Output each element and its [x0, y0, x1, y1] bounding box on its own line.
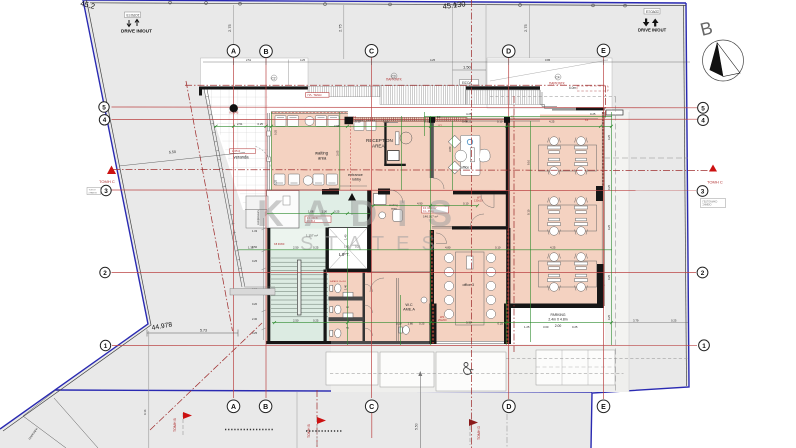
svg-text:3: 3: [104, 188, 108, 195]
svg-text:3.79: 3.79: [633, 319, 639, 323]
svg-text:0.25: 0.25: [258, 122, 264, 126]
svg-text:K8 Φ450: K8 Φ450: [274, 242, 285, 246]
svg-text:0.25: 0.25: [274, 129, 278, 135]
svg-text:4.25: 4.25: [607, 224, 611, 230]
svg-text:9.10: 9.10: [527, 209, 531, 215]
svg-text:entrance: entrance: [348, 173, 363, 177]
svg-text:ΣΗΜΕΙΟ: ΣΗΜΕΙΟ: [89, 193, 98, 195]
svg-text:4.25: 4.25: [607, 134, 611, 140]
svg-text:0.25: 0.25: [252, 259, 258, 263]
svg-text:E: E: [601, 48, 606, 55]
svg-text:9.10: 9.10: [526, 159, 530, 165]
svg-text:0.20: 0.20: [252, 302, 258, 306]
svg-text:C: C: [369, 48, 374, 55]
svg-text:4.25: 4.25: [430, 58, 436, 62]
svg-text:ΕΙΣΟΔ: ΕΙΣΟΔ: [462, 81, 472, 85]
svg-text:5.50: 5.50: [415, 423, 419, 430]
svg-text:0.25: 0.25: [671, 319, 677, 323]
svg-text:ΣΗΜΕΙΟ: ΣΗΜΕΙΟ: [703, 205, 712, 207]
svg-text:3.65: 3.65: [336, 150, 340, 156]
svg-text:2.50: 2.50: [252, 245, 258, 249]
svg-text:2.50: 2.50: [293, 319, 299, 323]
svg-text:A: A: [231, 404, 236, 411]
svg-text:ΚΑΤΑΣΚ 15x200: ΚΑΤΑΣΚ 15x200: [330, 280, 347, 283]
svg-text:9.16: 9.16: [143, 409, 147, 415]
svg-text:C2: C2: [272, 77, 276, 81]
svg-text:1.40: 1.40: [344, 234, 348, 240]
svg-text:1.80: 1.80: [408, 322, 414, 326]
svg-text:4.25: 4.25: [549, 120, 555, 124]
svg-text:D: D: [506, 404, 511, 411]
svg-text:AREA: AREA: [372, 144, 385, 149]
svg-text:K2: K2: [353, 115, 357, 119]
svg-text:4: 4: [103, 117, 107, 124]
svg-text:1.25: 1.25: [524, 325, 530, 329]
svg-text:2.30: 2.30: [252, 317, 258, 321]
svg-text:0.10: 0.10: [396, 322, 402, 326]
svg-text:0.10: 0.10: [463, 202, 469, 206]
svg-text:PARKING: PARKING: [550, 313, 565, 317]
svg-text:TOMH B: TOMH B: [173, 417, 177, 432]
svg-text:4.25: 4.25: [300, 58, 306, 62]
svg-text:D: D: [506, 49, 511, 56]
svg-text:0.10: 0.10: [495, 246, 501, 250]
svg-text:TOMH C: TOMH C: [99, 179, 115, 184]
svg-text:3.60: 3.60: [383, 120, 389, 124]
svg-text:ΠΑΡΚΙΝΓΚ: ΠΑΡΚΙΝΓΚ: [549, 82, 566, 86]
svg-text:ΕΞΟΔΟΣ: ΕΞΟΔΟΣ: [127, 13, 140, 17]
svg-text:5.73: 5.73: [200, 329, 207, 333]
svg-text:E: E: [601, 404, 606, 411]
svg-text:0.25: 0.25: [313, 246, 319, 250]
svg-text:0.25: 0.25: [498, 322, 504, 326]
svg-text:25x200: 25x200: [438, 318, 447, 322]
svg-text:2: 2: [103, 270, 107, 277]
svg-text:0.25: 0.25: [590, 112, 596, 116]
svg-text:4.25: 4.25: [466, 120, 472, 124]
svg-text:2.75: 2.75: [337, 23, 342, 32]
svg-text:4.25: 4.25: [550, 246, 556, 250]
svg-text:0.25: 0.25: [334, 209, 340, 213]
svg-text:B: B: [263, 404, 268, 411]
svg-text:3.95: 3.95: [545, 58, 551, 62]
svg-text:ΠΛ. ΤΕΝΩ: ΠΛ. ΤΕΝΩ: [308, 93, 323, 97]
svg-text:office 1: office 1: [461, 166, 472, 170]
svg-text:K1 Φ45: K1 Φ45: [230, 111, 239, 115]
svg-text:0.25: 0.25: [419, 322, 425, 326]
svg-text:TOMH D: TOMH D: [477, 425, 481, 440]
svg-text:4: 4: [701, 118, 705, 125]
svg-text:130x20: 130x20: [474, 198, 483, 202]
svg-text:TOMH C: TOMH C: [707, 180, 723, 185]
svg-text:K3: K3: [439, 124, 443, 128]
svg-text:ΤΟΠΟΓ: ΤΟΠΟΓ: [89, 190, 97, 192]
svg-text:3.30: 3.30: [466, 321, 472, 325]
svg-text:0.25: 0.25: [313, 319, 319, 323]
svg-text:area: area: [318, 155, 327, 160]
svg-text:0.25: 0.25: [607, 184, 611, 190]
svg-text:lobby: lobby: [352, 178, 361, 182]
svg-text:ΓΕΩΤΟΝΙΑΚΟ: ΓΕΩΤΟΝΙΑΚΟ: [703, 200, 718, 203]
svg-text:2.00: 2.00: [555, 324, 562, 328]
svg-text:2.50: 2.50: [293, 246, 299, 250]
svg-text:4.25: 4.25: [607, 314, 611, 320]
svg-text:C: C: [369, 404, 374, 411]
svg-text:0.10: 0.10: [497, 120, 503, 124]
svg-text:0.10: 0.10: [355, 120, 361, 124]
svg-text:1.33: 1.33: [252, 229, 258, 233]
svg-text:2.51: 2.51: [237, 122, 243, 126]
svg-text:0.25: 0.25: [252, 331, 258, 335]
svg-text:B: B: [263, 49, 268, 56]
svg-text:3: 3: [701, 189, 705, 196]
svg-text:3.00: 3.00: [543, 325, 549, 329]
svg-text:1.40: 1.40: [343, 284, 347, 290]
svg-text:2: 2: [701, 270, 705, 277]
svg-text:STATES: STATES: [300, 233, 447, 255]
svg-text:5: 5: [701, 105, 705, 112]
svg-text:1.00: 1.00: [322, 209, 328, 213]
svg-text:2.4m X 4.8m: 2.4m X 4.8m: [548, 318, 567, 322]
svg-text:0.10: 0.10: [424, 120, 430, 124]
svg-text:1.08: 1.08: [308, 209, 314, 213]
svg-text:5.50: 5.50: [169, 150, 176, 155]
svg-text:AME.A: AME.A: [403, 308, 415, 312]
svg-text:2.75: 2.75: [227, 23, 232, 32]
svg-text:veranda: veranda: [234, 154, 250, 159]
svg-text:0.25: 0.25: [572, 325, 578, 329]
svg-text:7.56: 7.56: [334, 124, 340, 128]
svg-text:DRIVE IN/OUT: DRIVE IN/OUT: [638, 28, 667, 33]
svg-text:4.25: 4.25: [466, 112, 472, 116]
svg-text:K5: K5: [585, 118, 589, 122]
svg-text:ΕΞΟΔΟΣ: ΕΞΟΔΟΣ: [646, 10, 659, 14]
svg-text:office 3: office 3: [463, 283, 475, 287]
svg-text:C3: C3: [392, 75, 396, 79]
svg-text:2.75: 2.75: [523, 23, 528, 32]
svg-text:C4: C4: [556, 76, 560, 80]
svg-text:4.90: 4.90: [417, 202, 423, 206]
svg-text:1: 1: [702, 343, 706, 350]
svg-text:2.51: 2.51: [246, 58, 252, 62]
svg-text:5: 5: [102, 104, 106, 111]
svg-text:K4: K4: [437, 115, 441, 119]
svg-text:W.C: W.C: [405, 303, 412, 307]
svg-text:6.0m: 6.0m: [569, 86, 576, 90]
svg-text:4.80: 4.80: [445, 246, 451, 250]
svg-text:1: 1: [104, 343, 108, 350]
svg-text:3.80: 3.80: [448, 146, 452, 152]
svg-text:0.25: 0.25: [274, 179, 278, 185]
svg-text:1.50: 1.50: [463, 65, 472, 70]
svg-text:RECEPTION: RECEPTION: [366, 138, 393, 143]
svg-text:DRIVE IN/OUT: DRIVE IN/OUT: [121, 29, 152, 34]
svg-text:0.25: 0.25: [607, 274, 611, 280]
svg-text:A: A: [231, 48, 236, 55]
